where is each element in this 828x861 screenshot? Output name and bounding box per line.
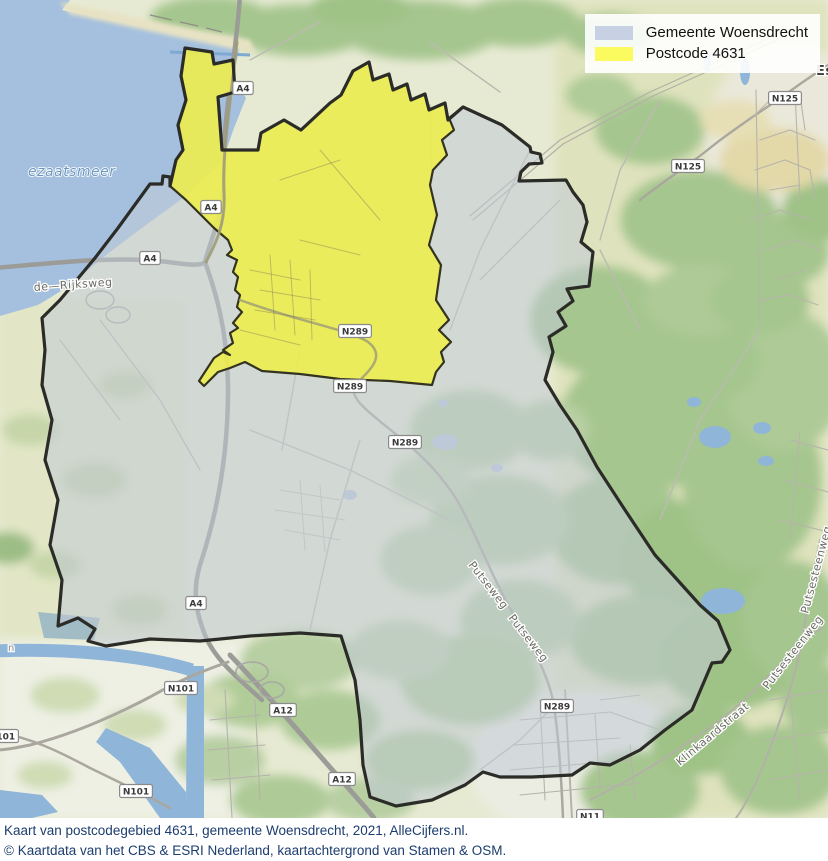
map: PutsewegPutsewegPutsesteenwegPutsesteenw… — [0, 0, 828, 818]
svg-text:A4: A4 — [204, 204, 217, 214]
svg-text:N289: N289 — [342, 328, 368, 338]
svg-text:A12: A12 — [273, 707, 293, 717]
svg-text:A4: A4 — [236, 85, 249, 95]
road-badge-n289: N289 — [389, 436, 422, 449]
legend-swatch — [595, 47, 633, 61]
svg-text:N125: N125 — [675, 163, 701, 173]
svg-text:A12: A12 — [332, 776, 352, 786]
road-badge-a4: A4 — [233, 82, 253, 95]
legend-item-1: Postcode 4631 — [595, 45, 808, 63]
legend-label: Postcode 4631 — [646, 45, 746, 63]
legend-label: Gemeente Woensdrecht — [646, 24, 808, 42]
road-badge-n125: N125 — [769, 92, 802, 105]
road-badge-a12: A12 — [270, 704, 297, 717]
road-badge-n101: N101 — [165, 682, 198, 695]
legend-swatch — [595, 26, 633, 40]
svg-text:A4: A4 — [189, 600, 202, 610]
caption-line-1: Kaart van postcodegebied 4631, gemeente … — [4, 821, 828, 841]
svg-text:N101: N101 — [123, 788, 149, 798]
road-badge-n101: N101 — [120, 785, 153, 798]
svg-text:N101: N101 — [0, 733, 15, 743]
road-badge-n101: N101 — [0, 730, 18, 743]
road-badge-a4: A4 — [140, 252, 160, 265]
street-label: n — [8, 643, 15, 654]
road-badge-a4: A4 — [201, 201, 221, 214]
svg-text:N289: N289 — [392, 439, 418, 449]
road-badge-n289: N289 — [339, 325, 372, 338]
map-caption: Kaart van postcodegebied 4631, gemeente … — [0, 818, 828, 861]
legend: Gemeente WoensdrechtPostcode 4631 — [585, 14, 820, 73]
road-badge-n11: N11 — [577, 810, 604, 819]
road-badge-a12: A12 — [329, 773, 356, 786]
svg-text:N289: N289 — [544, 703, 570, 713]
road-badge-n289: N289 — [541, 700, 574, 713]
svg-text:N101: N101 — [168, 685, 194, 695]
road-badge-n289: N289 — [334, 380, 367, 393]
street-label: ezaatsmeer — [28, 164, 116, 180]
svg-text:A4: A4 — [143, 255, 156, 265]
road-badge-n125: N125 — [672, 160, 705, 173]
svg-text:N289: N289 — [337, 383, 363, 393]
caption-line-2: © Kaartdata van het CBS & ESRI Nederland… — [4, 841, 828, 861]
legend-item-0: Gemeente Woensdrecht — [595, 24, 808, 42]
road-badge-a4: A4 — [186, 597, 206, 610]
map-canvas: PutsewegPutsewegPutsesteenwegPutsesteenw… — [0, 0, 828, 818]
svg-text:N125: N125 — [772, 95, 798, 105]
